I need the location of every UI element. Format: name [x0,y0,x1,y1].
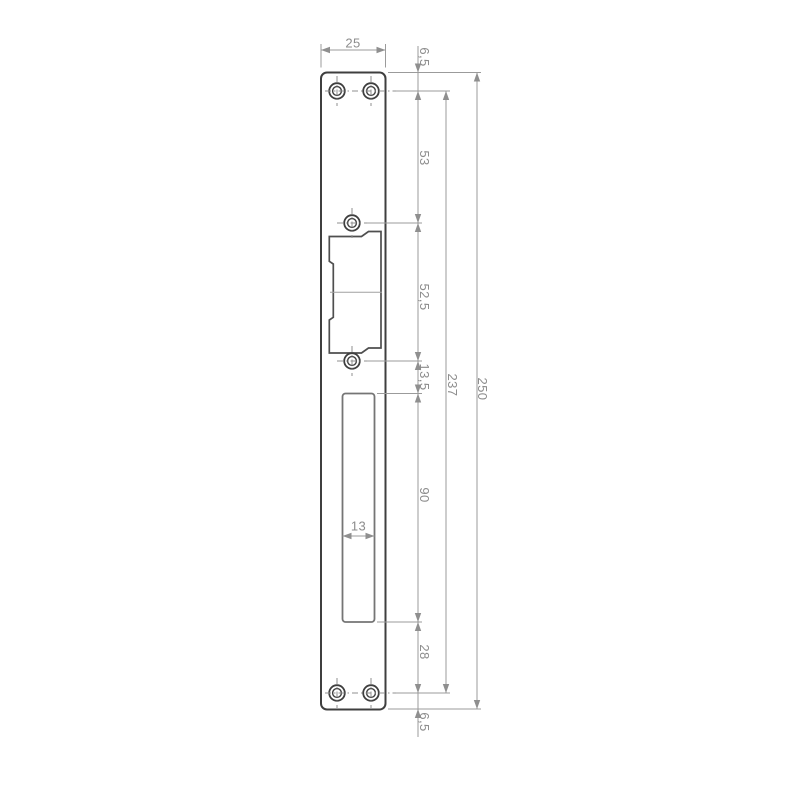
plate-outline [321,73,386,710]
dim-label-250: 250 [475,378,490,401]
dim-label-13: 13 [351,519,366,534]
dim-overall-height: 250 [474,73,490,710]
dim-label-237: 237 [445,374,460,397]
dim-label-13-5: 13,5 [417,364,432,391]
strike-plate-technical-drawing: 25 6,5 53 52,5 13,5 90 28 6,5 237 [0,0,800,800]
dim-label-plate-width: 25 [345,36,360,51]
dim-label-52-5: 52,5 [417,284,432,311]
dim-plate-width: 25 [321,36,386,54]
dim-label-90: 90 [417,487,432,502]
dim-label-28: 28 [417,644,432,659]
dim-label-bottom-offset: 6,5 [417,712,432,731]
dim-holes-span: 237 [443,91,460,693]
drawing-canvas: 25 6,5 53 52,5 13,5 90 28 6,5 237 [0,0,800,800]
dim-label-top-offset: 6,5 [417,47,432,66]
dim-label-53: 53 [417,150,432,165]
dim-chain-vertical: 6,5 53 52,5 13,5 90 28 6,5 [415,46,432,737]
